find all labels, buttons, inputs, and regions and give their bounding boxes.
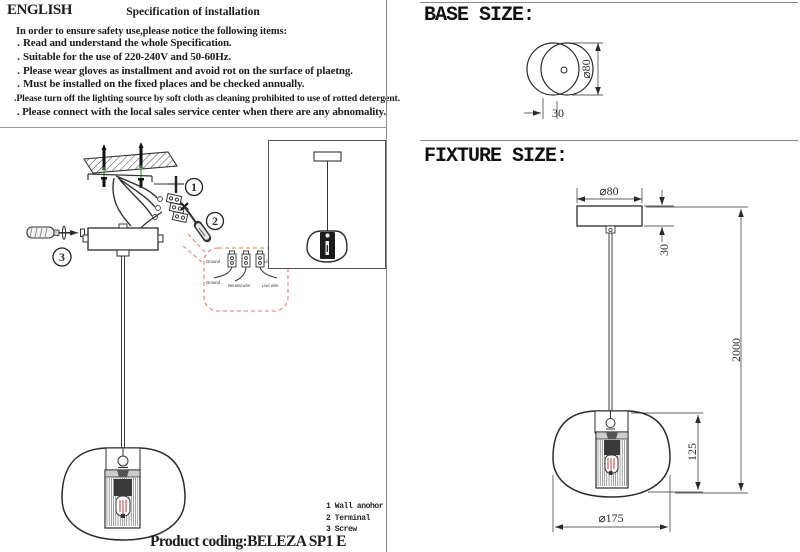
section-separator-line	[420, 140, 798, 141]
canopy-height-dim: 30	[657, 244, 671, 256]
safety-intro: In order to ensure safety use,please not…	[16, 26, 287, 37]
screw-step-1: 1	[154, 176, 203, 196]
product-coding: Product coding:BELEZA SP1 E	[150, 533, 346, 551]
bullet: .	[14, 65, 23, 79]
base-size-drawing: ⌀80 30	[490, 28, 700, 130]
parts-legend: 1 Wall anohor 2 Terminal 3 Screw	[326, 501, 383, 536]
bullet: .	[14, 37, 23, 51]
list-item: .Read and understand the whole Specifica…	[14, 37, 386, 51]
base-depth-dim: 30	[552, 106, 564, 120]
list-item: .Must be installed on the fixed places a…	[14, 78, 386, 92]
step-2-number: 2	[212, 214, 218, 228]
list-item: .Please wear gloves as installment and a…	[14, 65, 386, 79]
wire-label: Neutral wire	[228, 283, 251, 288]
center-divider-line	[386, 0, 387, 552]
lamp-holder	[114, 479, 132, 496]
screwdriver-2: 2	[181, 203, 224, 238]
canopy-diameter-dim: ⌀80	[599, 184, 618, 198]
bulb-socket-top	[118, 456, 128, 466]
legend-item: 2 Terminal	[326, 513, 383, 525]
shade-height-dim: 125	[685, 443, 699, 461]
legend-item: 1 Wall anohor	[326, 501, 383, 513]
left-panel-divider-line	[0, 127, 386, 128]
wire-label: Ground	[206, 259, 221, 264]
bullet: .	[14, 78, 23, 92]
shade-diameter-dim: ⌀175	[598, 511, 623, 525]
screwdriver-3: 3	[27, 226, 85, 266]
fixture-size-drawing: ⌀80 30 2000	[530, 175, 800, 552]
step-3-number: 3	[59, 250, 65, 264]
list-item: .Please turn off the lighting source by …	[14, 92, 386, 106]
canopy	[83, 212, 163, 452]
installation-spec-sheet: ENGLISH Specification of installation In…	[0, 0, 800, 552]
wire-label: Live wire	[262, 283, 279, 288]
right-panel-top-line	[420, 2, 798, 3]
ribbed-diffuser	[105, 470, 140, 528]
assembled-pendant-inset	[268, 140, 386, 269]
safety-items-list: .Read and understand the whole Specifica…	[14, 37, 386, 120]
ceiling-cross-section	[84, 152, 177, 173]
fixture-canopy	[577, 206, 642, 226]
base-size-title: BASE SIZE:	[424, 4, 534, 27]
lamp-holder	[604, 440, 620, 455]
overall-length-dim: 2000	[729, 338, 743, 362]
page-title: Specification of installation	[0, 6, 386, 18]
base-diameter-dim: ⌀80	[579, 59, 593, 78]
glass-shade	[62, 448, 185, 540]
list-item: .Suitable for the use of 220-240V and 50…	[14, 51, 386, 65]
assembled-pendant-drawing	[269, 141, 385, 268]
fixture-glass-shade	[553, 411, 670, 497]
bullet: .	[14, 51, 23, 65]
bullet: .	[14, 106, 22, 120]
step-1-number: 1	[191, 180, 197, 194]
fixture-size-title: FIXTURE SIZE:	[424, 145, 567, 168]
list-item: .Please connect with the local sales ser…	[14, 106, 386, 120]
wire-label: Ground	[206, 280, 221, 285]
